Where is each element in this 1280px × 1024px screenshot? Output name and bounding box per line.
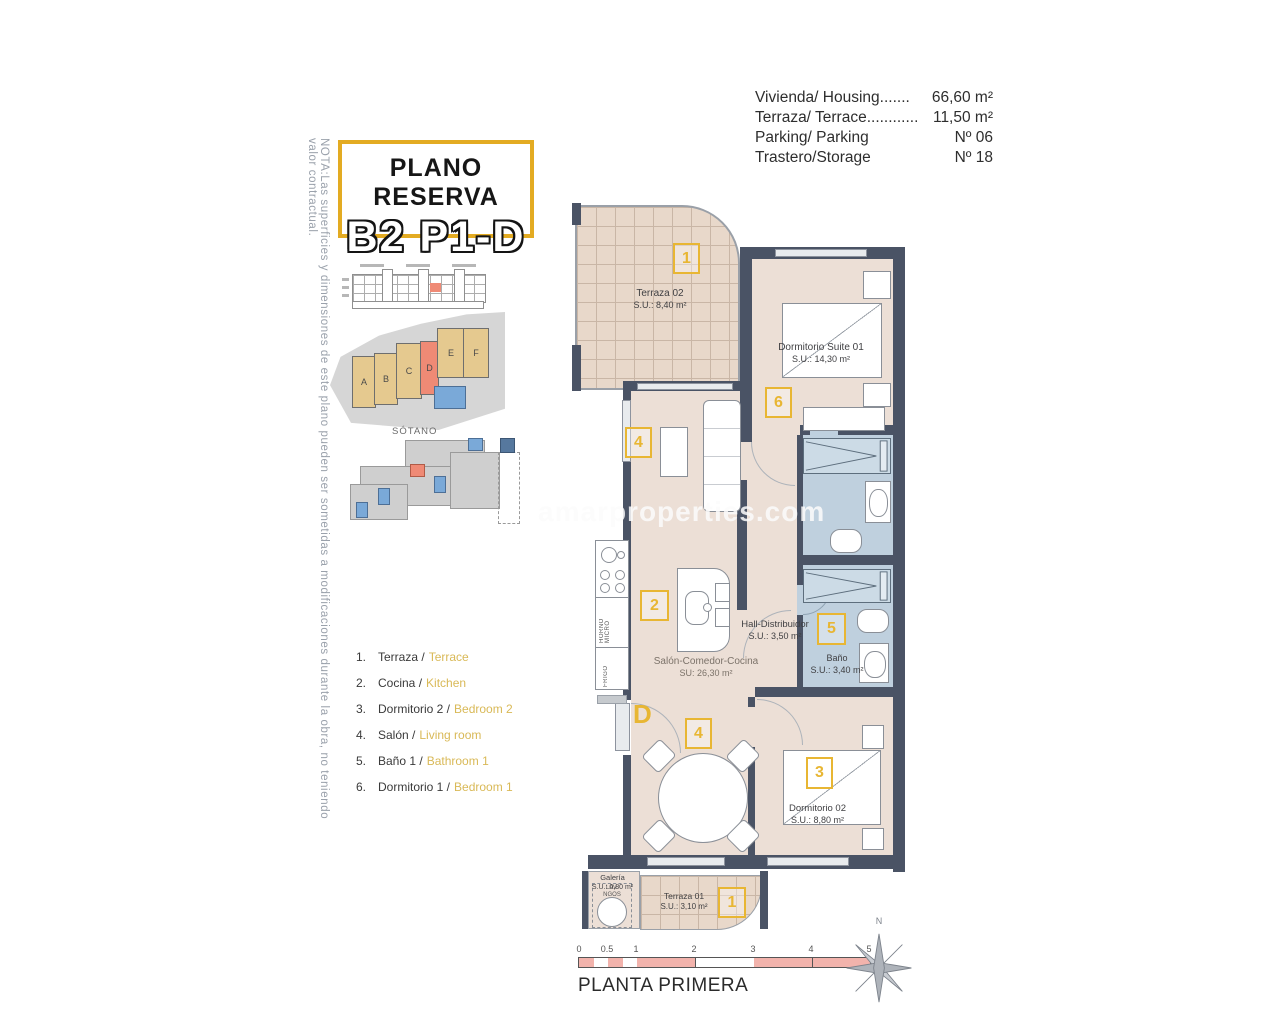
spec-label: Parking/ Parking xyxy=(755,128,869,148)
scale-tick: 1 xyxy=(633,944,638,954)
spec-row-terrace: Terraza/ Terrace............ 11,50 m² xyxy=(755,108,993,128)
apartment-floor-plan: HORNO MICRO FRIGO xyxy=(575,195,970,940)
spec-value: Nº 18 xyxy=(955,148,993,168)
room-area: S.U.: 8,80 m² xyxy=(760,815,875,827)
basement-blue-spot xyxy=(468,438,483,451)
building-letter: F xyxy=(473,348,479,358)
ensuite-shower xyxy=(803,438,891,474)
legend-item: 3. Dormitorio 2 / Bedroom 2 xyxy=(356,702,536,716)
window-dorm02-bottom xyxy=(767,857,849,866)
legend-item: 5. Baño 1 / Bathroom 1 xyxy=(356,754,536,768)
legend-label-en: Bathroom 1 xyxy=(427,754,489,768)
kitchen-mat xyxy=(597,695,627,704)
building-elevation-diagram xyxy=(342,262,492,317)
label-terraza02: Terraza 02 S.U.: 8,40 m² xyxy=(605,287,715,312)
basement-blue-spot xyxy=(434,476,446,493)
building-letter: C xyxy=(406,366,413,376)
site-building-b: B xyxy=(374,353,398,405)
scale-tick: 0.5 xyxy=(601,944,614,954)
room-name: Hall-Distribuidor xyxy=(725,619,825,631)
room-tag-salon: 4 xyxy=(625,427,652,458)
legend-label-en: Bedroom 1 xyxy=(454,780,513,794)
bano-shower xyxy=(803,569,891,603)
window-suite xyxy=(775,249,867,257)
coffee-table xyxy=(660,427,688,477)
room-name: Galería xyxy=(585,873,640,883)
site-pool xyxy=(434,386,466,409)
ensuite-toilet xyxy=(830,529,862,553)
legend-number: 6. xyxy=(356,780,378,794)
label-galeria: Galería S.U.: 0,80 m² xyxy=(585,873,640,892)
legend-number: 1. xyxy=(356,650,378,664)
elevation-axis-mark xyxy=(342,286,349,289)
bar-stool xyxy=(715,583,730,602)
disclaimer-note: NOTA:Las superficies y dimensiones de es… xyxy=(306,138,330,838)
dorm02-nightstand xyxy=(862,828,884,850)
counter-divider xyxy=(595,647,629,648)
island-faucet xyxy=(703,603,712,612)
label-hall: Hall-Distribuidor S.U.: 3,50 m² xyxy=(725,619,825,643)
wall-terrace-stub xyxy=(572,203,581,225)
scale-segment xyxy=(579,958,594,967)
legend-item: 1. Terraza / Terrace xyxy=(356,650,536,664)
spec-row-storage: Trastero/Storage Nº 18 xyxy=(755,148,993,168)
elevation-tower xyxy=(382,269,393,303)
basement-blue-spot xyxy=(378,488,390,505)
room-area: S.U.: 8,40 m² xyxy=(605,300,715,312)
room-tag-dining: 4 xyxy=(685,718,712,749)
legend-number: 4. xyxy=(356,728,378,742)
shower-screen-lines xyxy=(804,570,890,602)
site-building-e: E xyxy=(437,328,465,378)
legend-label-es: Salón / xyxy=(378,728,415,742)
hob-burner xyxy=(615,583,625,593)
wall-ensuite-bano-divider xyxy=(800,555,905,565)
legend-label-es: Baño 1 / xyxy=(378,754,423,768)
legend-label-es: Terraza / xyxy=(378,650,425,664)
scale-divider xyxy=(812,958,813,967)
suite-nightstand xyxy=(863,383,891,407)
room-tag-terraza02: 1 xyxy=(673,243,700,274)
label-salon: Salón-Comedor-Cocina SU: 26,30 m² xyxy=(645,655,767,680)
shower-screen-lines xyxy=(804,439,890,473)
legend-item: 6. Dormitorio 1 / Bedroom 1 xyxy=(356,780,536,794)
spec-value: 11,50 m² xyxy=(933,108,993,128)
wall-bottom xyxy=(588,855,905,869)
watermark: amarproperties.com xyxy=(538,496,825,528)
counter-divider xyxy=(595,597,629,598)
legend-label-es: Dormitorio 2 / xyxy=(378,702,450,716)
legend-item: 2. Cocina / Kitchen xyxy=(356,676,536,690)
room-legend: 1. Terraza / Terrace 2. Cocina / Kitchen… xyxy=(356,650,536,806)
scale-tick: 0 xyxy=(576,944,581,954)
hob-burner xyxy=(600,583,610,593)
wall-terrace-stub xyxy=(572,345,581,391)
ensuite-sink-basin xyxy=(869,489,888,517)
wall-terrace-suite-divider xyxy=(740,247,752,442)
dorm02-nightstand xyxy=(862,725,884,749)
spec-label: Trastero/Storage xyxy=(755,148,871,168)
building-letter: D xyxy=(426,363,433,373)
spec-label: Terraza/ Terrace............ xyxy=(755,108,918,128)
legend-label-es: Cocina / xyxy=(378,676,422,690)
room-name: Terraza 01 xyxy=(650,891,718,902)
window-salon-bottom xyxy=(647,857,725,866)
room-area: S.U.: 3,10 m² xyxy=(650,902,718,912)
hob-burner xyxy=(615,570,625,580)
title-box: PLANO RESERVA B2 P1-D xyxy=(338,140,534,238)
site-building-a: A xyxy=(352,356,376,408)
scale-tick: 3 xyxy=(750,944,755,954)
basement-blue-spot xyxy=(500,438,515,453)
scale-bar-track xyxy=(578,957,871,968)
basement-diagram: SÓTANO xyxy=(350,422,520,530)
oven-microwave-label: HORNO MICRO xyxy=(599,601,611,643)
room-tag-kitchen: 2 xyxy=(640,590,669,621)
label-terraza01: Terraza 01 S.U.: 3,10 m² xyxy=(650,891,718,912)
window-salon-terrace-door xyxy=(637,383,733,390)
washer-drum xyxy=(597,897,627,927)
floor-caption: PLANTA PRIMERA xyxy=(578,975,748,997)
scale-divider xyxy=(695,958,696,967)
hob-burner xyxy=(600,570,610,580)
room-tag-suite: 6 xyxy=(765,387,792,418)
building-letter: B xyxy=(383,374,389,384)
scale-tick: 2 xyxy=(691,944,696,954)
basement-area xyxy=(450,452,500,509)
unit-code: B2 P1-D xyxy=(342,213,530,262)
basement-label: SÓTANO xyxy=(392,426,437,437)
room-area: S.U.: 3,50 m² xyxy=(725,631,825,643)
hob-burner xyxy=(617,551,625,559)
elevation-highlighted-unit xyxy=(430,283,441,292)
label-suite: Dormitorio Suite 01 S.U.: 14,30 m² xyxy=(760,341,882,366)
room-name: Baño xyxy=(797,653,877,665)
room-area: S.U.: 14,30 m² xyxy=(760,354,882,366)
compass-rose: N xyxy=(843,916,915,1012)
label-bano: Baño S.U.: 3,40 m² xyxy=(797,653,877,676)
room-name: Salón-Comedor-Cocina xyxy=(645,655,767,668)
compass-star-icon xyxy=(843,926,915,1010)
site-plan-diagram: A B C D E F xyxy=(330,312,505,430)
elevation-tower xyxy=(418,269,429,303)
legend-number: 2. xyxy=(356,676,378,690)
spec-row-housing: Vivienda/ Housing....... 66,60 m² xyxy=(755,88,993,108)
compass-north-label: N xyxy=(843,916,915,926)
elevation-base-row xyxy=(352,301,484,309)
elevation-axis-mark xyxy=(342,278,349,281)
specs-table: Vivienda/ Housing....... 66,60 m² Terraz… xyxy=(755,88,993,168)
room-area: SU: 26,30 m² xyxy=(645,668,767,680)
building-letter: E xyxy=(448,348,454,358)
elevation-header-mark xyxy=(452,264,476,267)
site-building-f: F xyxy=(463,328,489,378)
scale-segment xyxy=(608,958,623,967)
fridge-label: FRIGO xyxy=(603,651,609,687)
elevation-axis-mark xyxy=(342,294,349,297)
wall-bano-dorm02-divider xyxy=(755,687,905,697)
basement-highlighted-spot xyxy=(410,464,425,477)
site-building-c: C xyxy=(396,343,422,399)
scale-segment xyxy=(637,958,695,967)
spec-label: Vivienda/ Housing....... xyxy=(755,88,910,108)
legend-label-en: Living room xyxy=(419,728,481,742)
legend-label-en: Bedroom 2 xyxy=(454,702,513,716)
room-name: Dormitorio Suite 01 xyxy=(760,341,882,354)
label-dorm02: Dormitorio 02 S.U.: 8,80 m² xyxy=(760,803,875,827)
legend-label-es: Dormitorio 1 / xyxy=(378,780,450,794)
suite-wardrobe xyxy=(803,407,885,431)
building-letter: A xyxy=(361,377,367,387)
basement-dashed-area xyxy=(498,452,520,524)
suite-nightstand xyxy=(863,271,891,299)
entrance-door-letter: D xyxy=(633,699,652,730)
legend-number: 3. xyxy=(356,702,378,716)
spec-value: 66,60 m² xyxy=(932,88,993,108)
scale-tick: 4 xyxy=(808,944,813,954)
room-tag-terraza01: 1 xyxy=(718,887,746,918)
spec-row-parking: Parking/ Parking Nº 06 xyxy=(755,128,993,148)
wall-terraza01-right xyxy=(760,871,768,929)
scale-bar: 0 0.5 1 2 3 4 5 xyxy=(578,944,878,976)
legend-number: 5. xyxy=(356,754,378,768)
room-area: S.U.: 3,40 m² xyxy=(797,665,877,677)
elevation-tower xyxy=(454,269,465,303)
floorplan-page: NOTA:Las superficies y dimensiones de es… xyxy=(0,0,1280,1024)
legend-item: 4. Salón / Living room xyxy=(356,728,536,742)
room-name: Terraza 02 xyxy=(605,287,715,300)
elevation-header-mark xyxy=(406,264,430,267)
basement-blue-spot xyxy=(356,502,368,518)
elevation-header-mark xyxy=(360,264,384,267)
kitchen-sink xyxy=(601,547,617,563)
legend-label-en: Terrace xyxy=(429,650,469,664)
room-name: Dormitorio 02 xyxy=(760,803,875,815)
wall-dorm02-stub xyxy=(748,697,755,707)
entrance-door-leaf xyxy=(615,703,630,751)
room-tag-dorm02: 3 xyxy=(806,757,833,789)
room-area: S.U.: 0,80 m² xyxy=(585,883,640,892)
bano-toilet xyxy=(857,609,889,633)
plan-type-title: PLANO RESERVA xyxy=(342,154,530,212)
spec-value: Nº 06 xyxy=(955,128,993,148)
legend-label-en: Kitchen xyxy=(426,676,466,690)
